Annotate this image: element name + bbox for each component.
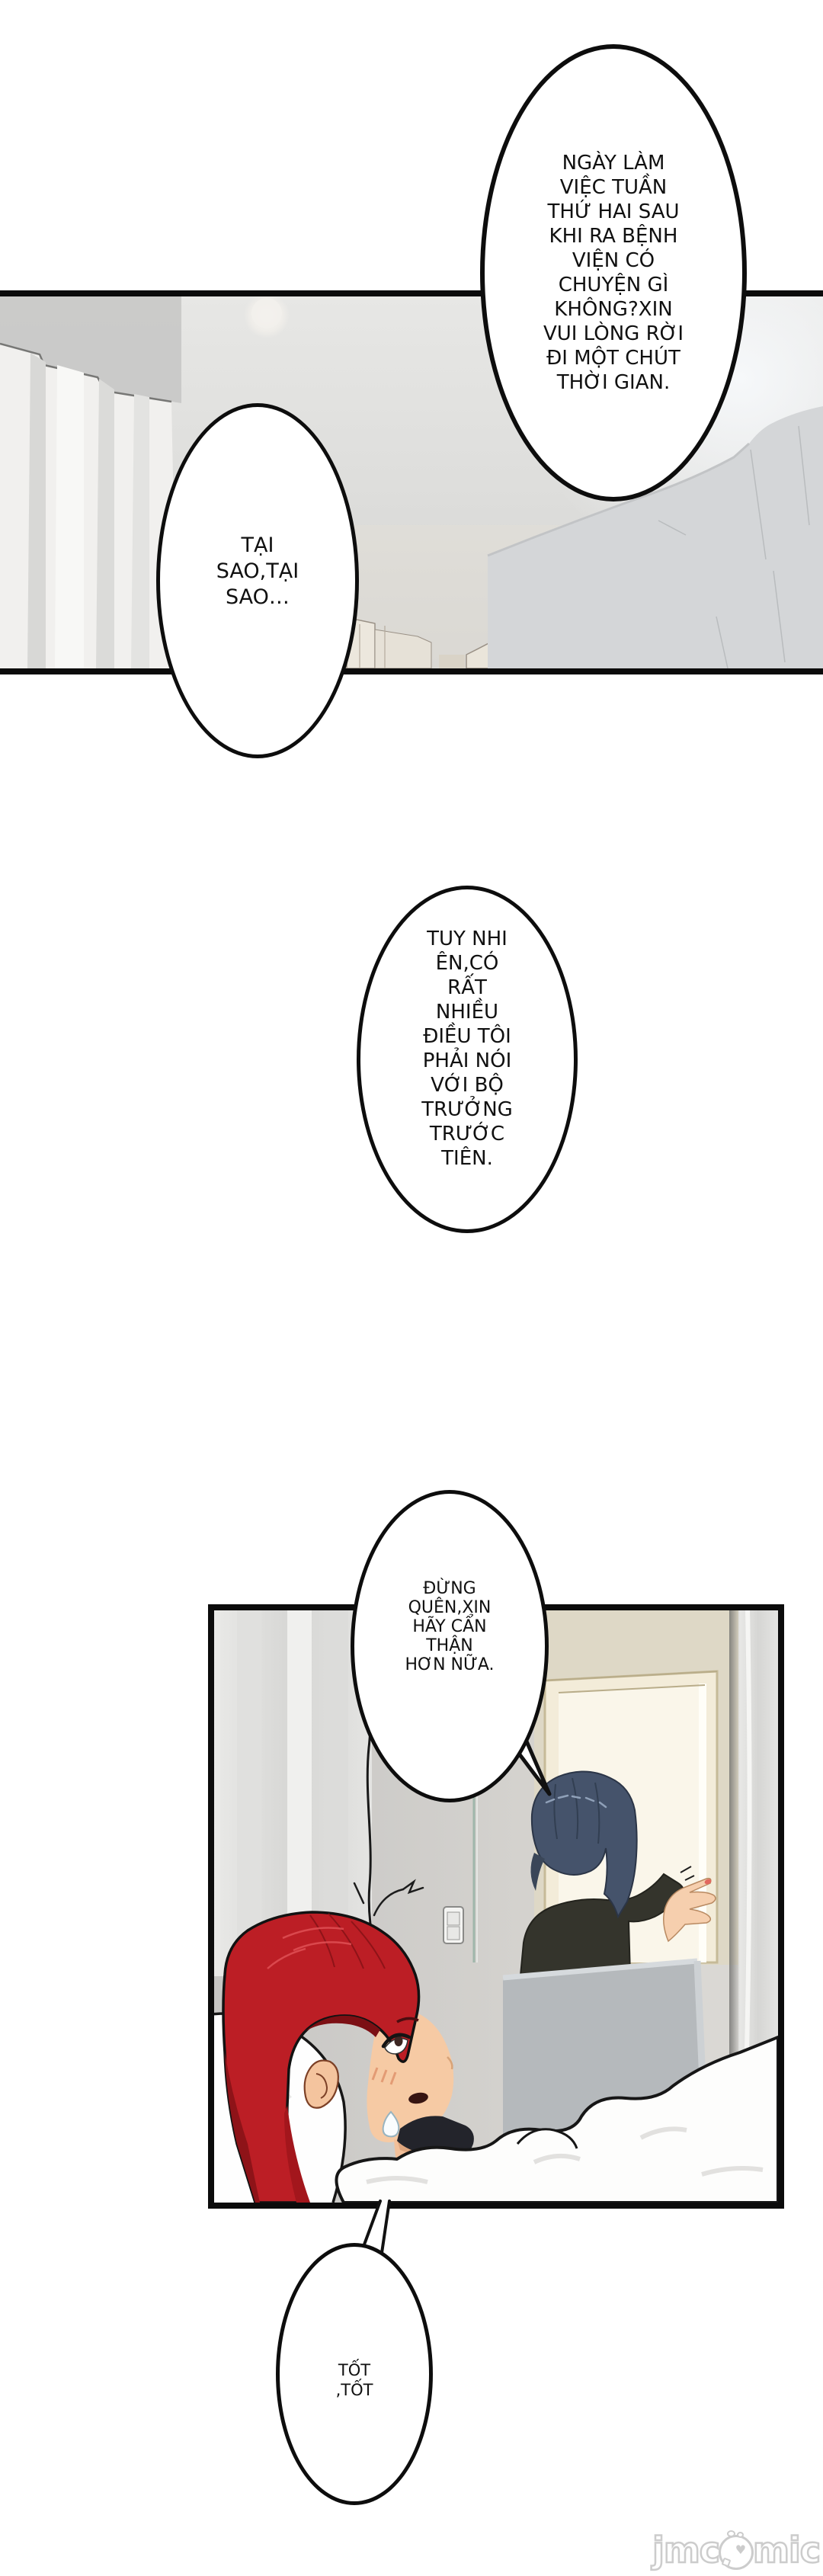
bubble-text-line: RẤT — [421, 976, 513, 1000]
mascot-tuft-icon — [727, 2530, 735, 2537]
bubble-text: ĐỪNGQUÊN,XINHÃY CẨNTHẬNHƠN NỮA. — [405, 1579, 494, 1674]
bubble-text-line: ĐI MỘT CHÚT — [543, 346, 684, 370]
bubble-text-line: TIÊN. — [421, 1146, 513, 1171]
bubble-text-line: PHẢI NÓI — [421, 1049, 513, 1073]
bubble-text-line: NGÀY LÀM — [543, 151, 684, 175]
bubble-text-line: TUY NHI — [421, 927, 513, 951]
bubble-text-line: ÊN,CÓ — [421, 951, 513, 976]
bubble-text-line: ĐỪNG — [405, 1579, 494, 1598]
bubble-text-line: VỚI BỘ — [421, 1073, 513, 1097]
watermark-suffix: mic — [753, 2527, 820, 2573]
watermark-prefix: jmc — [652, 2527, 719, 2573]
mascot-tuft-icon — [737, 2532, 744, 2538]
bubble-text-line: KHI RA BỆNH — [543, 224, 684, 248]
bubble-text-line: KHÔNG?XIN — [543, 297, 684, 322]
speech-bubble-taisao: TẠISAO,TẠISAO… — [156, 403, 359, 758]
bubble-text-line: VUI LÒNG RỜI — [543, 322, 684, 346]
bubble-text-line: TRƯỚC — [421, 1122, 513, 1146]
bubble-text-line: TỐT — [336, 2360, 373, 2380]
bubble-text-line: SAO… — [216, 585, 299, 610]
bubble-text-line: THẬN — [405, 1636, 494, 1655]
mascot-beak-icon — [722, 2558, 732, 2568]
bubble-text: TẠISAO,TẠISAO… — [216, 533, 299, 610]
right-curtain — [729, 1610, 778, 2098]
bubble-text-line: NHIỀU — [421, 1000, 513, 1024]
bubble-text-line: ,TỐT — [336, 2380, 373, 2400]
speech-bubble-dungquen: ĐỪNGQUÊN,XINHÃY CẨNTHẬNHƠN NỮA. — [351, 1490, 549, 1802]
light-switch — [444, 1907, 463, 1943]
heart-icon: ♥ — [735, 2544, 746, 2556]
bubble-text-line: ĐIỀU TÔI — [421, 1024, 513, 1049]
bubble-text-line: HÃY CẨN — [405, 1617, 494, 1636]
speech-bubble-tot: TỐT,TỐT — [276, 2243, 433, 2505]
bubble-text-line: VIỆN CÓ — [543, 248, 684, 273]
bubble-text-line: VIỆC TUẦN — [543, 175, 684, 200]
bubble-text-line: HƠN NỮA. — [405, 1655, 494, 1674]
comic-page: NGÀY LÀMVIỆC TUẦNTHỨ HAI SAUKHI RA BỆNHV… — [0, 0, 823, 2576]
speech-bubble-top: NGÀY LÀMVIỆC TUẦNTHỨ HAI SAUKHI RA BỆNHV… — [480, 44, 747, 501]
bubble-text-line: CHUYỆN GÌ — [543, 273, 684, 297]
bubble-text: TUY NHIÊN,CÓRẤTNHIỀUĐIỀU TÔIPHẢI NÓIVỚI … — [421, 927, 513, 1171]
speech-bubble-tuynhien: TUY NHIÊN,CÓRẤTNHIỀUĐIỀU TÔIPHẢI NÓIVỚI … — [357, 886, 578, 1233]
bubble-text-line: QUÊN,XIN — [405, 1598, 494, 1617]
bubble-text-line: TRƯỞNG — [421, 1097, 513, 1122]
bubble-text-line: TẠI — [216, 533, 299, 559]
bubble-text-line: SAO,TẠI — [216, 559, 299, 585]
chick-mascot-icon: ♥ — [719, 2535, 754, 2570]
bubble-text: TỐT,TỐT — [336, 2360, 373, 2400]
jmcomic-watermark: jmc ♥ mic — [652, 2527, 820, 2573]
bubble-text: NGÀY LÀMVIỆC TUẦNTHỨ HAI SAUKHI RA BỆNHV… — [543, 151, 684, 395]
bubble-text-line: THỨ HAI SAU — [543, 200, 684, 224]
bubble-text-line: THỜI GIAN. — [543, 370, 684, 395]
